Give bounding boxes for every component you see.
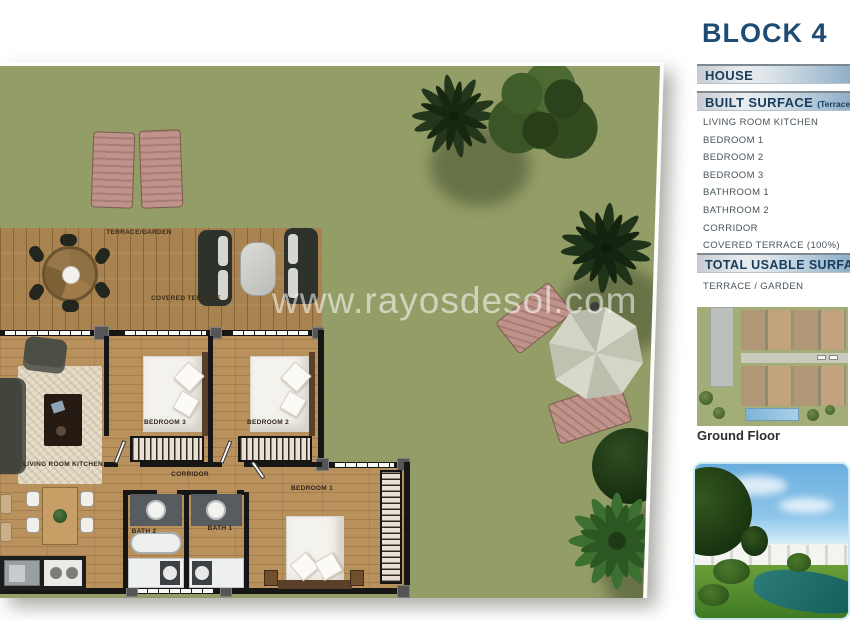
photo-bush xyxy=(787,553,811,571)
living-sofa xyxy=(0,378,26,474)
label-living-room-kitchen: LIVING ROOM KITCHEN xyxy=(2,461,124,468)
fixture-bowl xyxy=(163,566,177,580)
room-list-item: LIVING ROOM KITCHEN xyxy=(703,114,850,132)
fixture-bowl xyxy=(195,566,209,580)
photo-cloud xyxy=(779,498,833,513)
toilet-fixture xyxy=(192,561,212,585)
photo-bush xyxy=(713,559,750,584)
built-surface-bar: BUILT SURFACE (Terrace 100%) xyxy=(697,91,850,111)
bathroom-sink xyxy=(146,500,166,520)
outdoor-chair xyxy=(62,300,79,312)
room-list-item: BEDROOM 1 xyxy=(703,132,850,150)
thumb-buildings-row xyxy=(741,310,846,350)
label-bath-1: BATH 1 xyxy=(200,525,240,532)
thumb-tree xyxy=(699,391,713,405)
exterior-wall xyxy=(404,462,410,592)
house-type-bar: HOUSE xyxy=(697,64,850,84)
interior-wall xyxy=(244,492,249,588)
built-surface-note: (Terrace 100%) xyxy=(817,99,850,109)
nightstand xyxy=(264,570,278,586)
dining-chair xyxy=(26,491,40,507)
site-plan-thumbnail xyxy=(697,307,848,426)
thumb-pool xyxy=(745,408,799,421)
dining-chair xyxy=(0,494,12,514)
ground-floor-label: Ground Floor xyxy=(697,428,780,443)
room-list-item: CORRIDOR xyxy=(703,220,850,238)
wardrobe xyxy=(130,436,204,462)
label-covered-terrace: COVERED TERRACE xyxy=(136,295,236,302)
dining-chair xyxy=(0,522,12,542)
bed xyxy=(286,516,344,588)
brochure-page: TERRACE/GARDEN COVERED TERRACE LIVING RO… xyxy=(0,0,850,620)
exterior-wall xyxy=(318,330,324,468)
label-bedroom-3: BEDROOM 3 xyxy=(125,419,205,426)
window xyxy=(124,331,206,335)
label-bedroom-2: BEDROOM 2 xyxy=(228,419,308,426)
sink-basin xyxy=(9,565,25,582)
sun-lounger xyxy=(139,129,184,208)
thumb-tree xyxy=(713,407,725,419)
surface-room-list: LIVING ROOM KITCHENBEDROOM 1BEDROOM 2BED… xyxy=(703,114,850,255)
bathtub xyxy=(130,532,182,554)
resort-photo xyxy=(693,462,850,620)
dining-chair xyxy=(80,517,94,533)
label-terrace-garden: TERRACE/GARDEN xyxy=(89,229,189,236)
block-title: BLOCK 4 xyxy=(702,18,828,49)
terrace-garden-row: TERRACE / GARDEN xyxy=(703,281,803,292)
sun-lounger xyxy=(91,131,136,208)
thumb-tree xyxy=(825,405,835,415)
toilet-fixture xyxy=(160,561,180,585)
nightstand xyxy=(350,570,364,586)
outdoor-coffee-table xyxy=(240,242,276,296)
wardrobe xyxy=(238,436,312,462)
table-plant xyxy=(53,509,67,523)
cooktop-burner xyxy=(50,567,62,579)
interior-wall xyxy=(104,336,109,436)
pine-bush xyxy=(562,486,672,601)
thumb-buildings-row xyxy=(741,366,846,406)
interior-wall xyxy=(208,336,213,462)
table-decor xyxy=(56,426,66,436)
room-list-item: BEDROOM 2 xyxy=(703,149,850,167)
bathroom-sink xyxy=(206,500,226,520)
cooktop-burner xyxy=(66,567,78,579)
photo-bush xyxy=(698,584,729,606)
coffee-table xyxy=(44,394,82,446)
room-list-item: BEDROOM 3 xyxy=(703,167,850,185)
room-list-item: BATHROOM 1 xyxy=(703,184,850,202)
window xyxy=(334,463,394,467)
built-surface-label: BUILT SURFACE xyxy=(705,95,813,110)
armchair xyxy=(22,336,68,375)
thumb-car xyxy=(817,355,826,360)
wardrobe xyxy=(380,470,402,584)
window xyxy=(4,331,90,335)
bushy-tree xyxy=(478,52,608,187)
sofa-cushion xyxy=(218,236,228,266)
thumb-tree xyxy=(807,409,819,421)
dining-chair xyxy=(26,517,40,533)
label-bath-2: BATH 2 xyxy=(124,528,164,535)
outdoor-chair xyxy=(60,234,77,246)
table-decor xyxy=(51,400,66,413)
kitchen-sink xyxy=(4,560,40,586)
label-bedroom-1: BEDROOM 1 xyxy=(272,485,352,492)
dining-chair xyxy=(80,491,94,507)
total-usable-bar: TOTAL USABLE SURFACE xyxy=(697,253,850,273)
thumb-car xyxy=(829,355,838,360)
bed-headboard xyxy=(309,352,315,436)
window xyxy=(232,331,308,335)
room-list-item: BATHROOM 2 xyxy=(703,202,850,220)
table-centerpiece xyxy=(62,266,80,284)
thumb-road xyxy=(710,307,734,387)
wall-joint xyxy=(397,585,410,598)
watermark-text: www.rayosdesol.com xyxy=(272,280,638,322)
window xyxy=(136,589,214,593)
label-corridor: CORRIDOR xyxy=(150,471,230,478)
kitchen-cooktop xyxy=(44,560,82,586)
bed-headboard xyxy=(278,580,352,589)
interior-wall xyxy=(140,462,222,467)
sofa-cushion xyxy=(288,234,298,264)
